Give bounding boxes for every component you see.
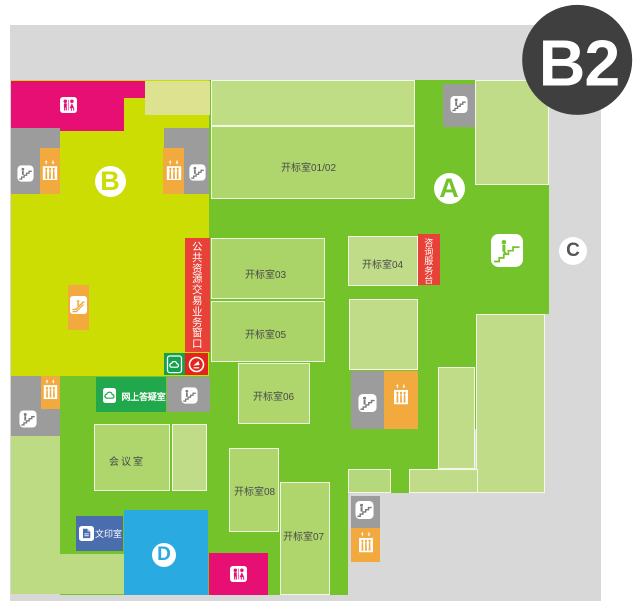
- svg-text:B2: B2: [539, 28, 619, 100]
